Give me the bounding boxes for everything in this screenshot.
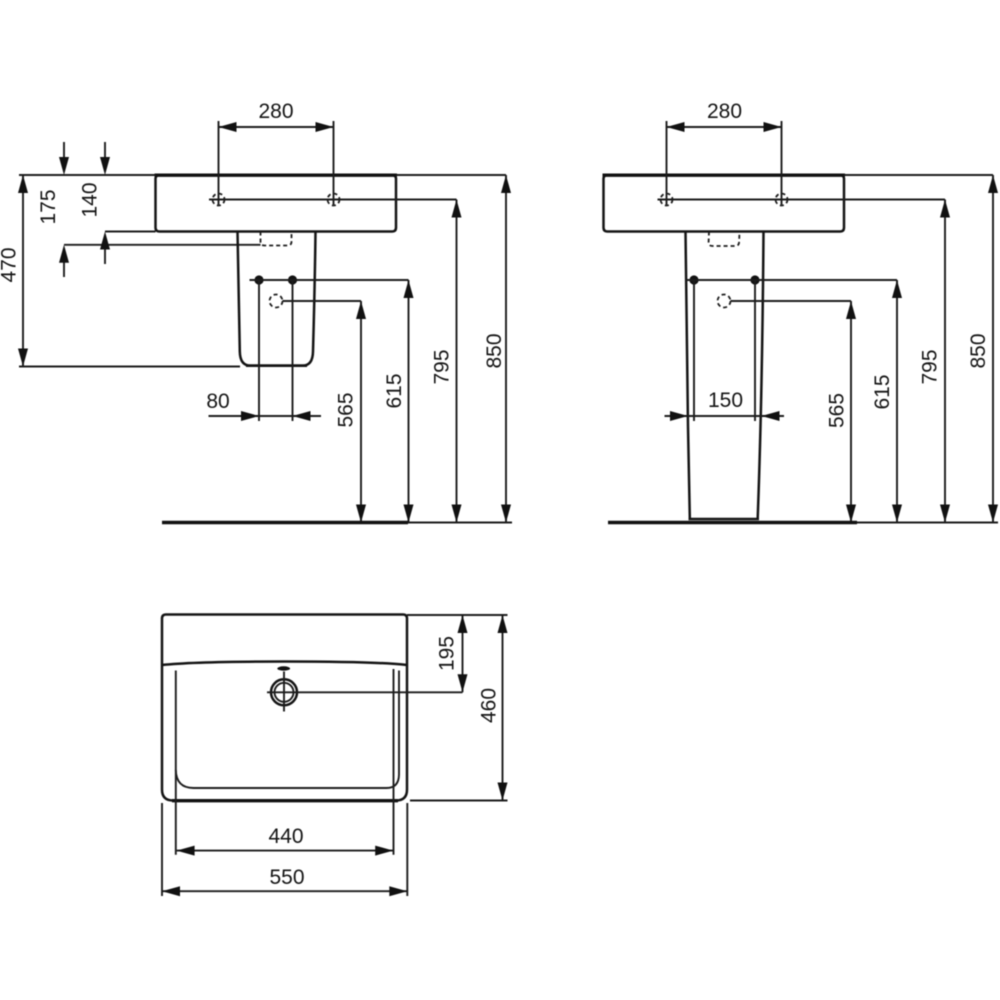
svg-text:195: 195 bbox=[436, 636, 459, 671]
svg-text:80: 80 bbox=[206, 390, 229, 413]
svg-text:795: 795 bbox=[431, 349, 454, 384]
svg-text:440: 440 bbox=[268, 825, 303, 848]
svg-text:150: 150 bbox=[708, 389, 743, 412]
svg-text:615: 615 bbox=[871, 374, 894, 409]
svg-text:565: 565 bbox=[335, 392, 358, 427]
svg-text:140: 140 bbox=[79, 182, 102, 217]
svg-text:850: 850 bbox=[967, 333, 990, 368]
svg-text:550: 550 bbox=[269, 866, 304, 889]
svg-text:565: 565 bbox=[826, 393, 849, 428]
svg-text:460: 460 bbox=[478, 688, 501, 723]
svg-text:850: 850 bbox=[483, 333, 506, 368]
svg-text:795: 795 bbox=[919, 349, 942, 384]
svg-text:280: 280 bbox=[258, 100, 293, 123]
svg-text:175: 175 bbox=[37, 189, 60, 224]
svg-text:615: 615 bbox=[383, 373, 406, 408]
svg-text:280: 280 bbox=[707, 100, 742, 123]
svg-text:470: 470 bbox=[0, 247, 21, 282]
